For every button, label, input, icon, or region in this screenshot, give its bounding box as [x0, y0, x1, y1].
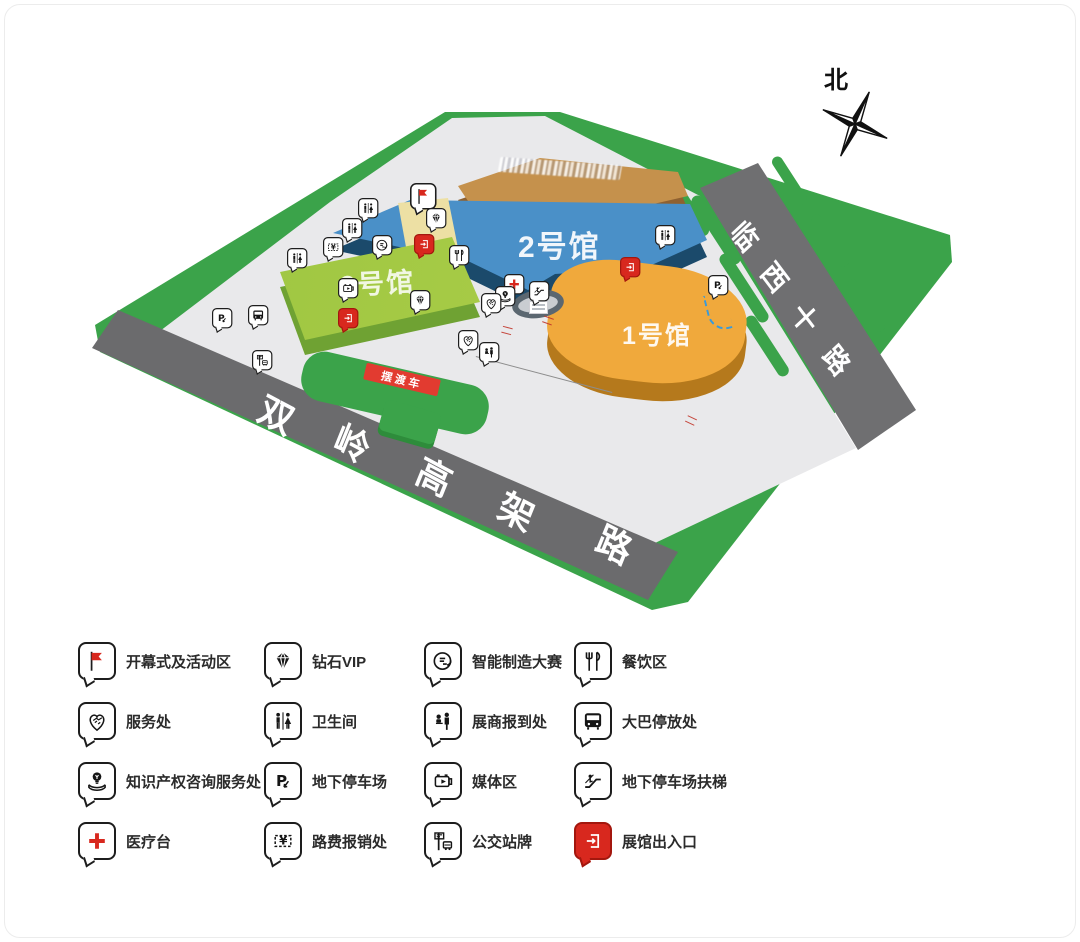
checkin-icon — [481, 344, 497, 360]
parking-icon — [214, 310, 230, 326]
map-pin-service — [481, 293, 501, 313]
legend-item-dining: 餐饮区 — [574, 642, 794, 702]
exit-icon — [416, 236, 432, 252]
legend-item-checkin: 展商报到处 — [424, 702, 574, 762]
legend-label: 公交站牌 — [472, 831, 532, 852]
legend-label: 卫生间 — [312, 711, 357, 732]
ticket-icon — [264, 822, 302, 860]
legend-item-escalator: 地下停车场扶梯 — [574, 762, 794, 822]
legend-label: 开幕式及活动区 — [126, 651, 231, 672]
dining-icon — [451, 247, 467, 263]
exit-icon — [574, 822, 612, 860]
escalator-icon — [531, 283, 547, 299]
map-pin-ticket — [323, 237, 343, 257]
legend-item-medical: 医疗台 — [78, 822, 264, 882]
restroom-icon — [657, 227, 673, 243]
media-icon — [424, 762, 462, 800]
legend-item-diamond: 钻石VIP — [264, 642, 424, 702]
hall2-label: 2号馆 — [518, 222, 601, 266]
checkin-icon — [424, 702, 462, 740]
escalator-icon — [574, 762, 612, 800]
map-pin-service — [458, 330, 478, 350]
map-pin-exit — [414, 234, 434, 254]
legend-item-parking: 地下停车场 — [264, 762, 424, 822]
legend-item-media: 媒体区 — [424, 762, 574, 822]
flag-icon — [78, 642, 116, 680]
legend-label: 展商报到处 — [472, 711, 547, 732]
parking-icon — [710, 277, 726, 293]
diamond-icon — [428, 210, 444, 226]
exit-icon — [622, 259, 638, 275]
legend-item-busstop: 公交站牌 — [424, 822, 574, 882]
legend-label: 路费报销处 — [312, 831, 387, 852]
legend-label: 媒体区 — [472, 771, 517, 792]
legend-label: 知识产权咨询服务处 — [126, 771, 261, 792]
parking-icon — [264, 762, 302, 800]
legend-label: 智能制造大赛 — [472, 651, 562, 672]
diamond-icon — [264, 642, 302, 680]
legend-item-service: 服务处 — [78, 702, 264, 762]
map-pin-restroom — [342, 218, 362, 238]
legend-label: 餐饮区 — [622, 651, 667, 672]
map-pin-diamond — [410, 290, 430, 310]
bus-icon — [574, 702, 612, 740]
legend-label: 大巴停放处 — [622, 711, 697, 732]
legend-item-bus: 大巴停放处 — [574, 702, 794, 762]
map-pin-parking — [212, 308, 232, 328]
map-pin-bus — [248, 305, 268, 325]
restroom-icon — [344, 220, 360, 236]
legend-item-ticket: 路费报销处 — [264, 822, 424, 882]
flag-icon — [413, 186, 433, 206]
poster-canvas: 2号馆 3号馆 1号馆 摆渡车 双岭高架路临西十路 北 开幕式及活动区钻石VIP… — [0, 0, 1080, 942]
map-pin-exit — [338, 308, 358, 328]
map-pin-restroom — [358, 198, 378, 218]
map-pin-media — [338, 278, 358, 298]
exit-icon — [340, 310, 356, 326]
legend-label: 医疗台 — [126, 831, 171, 852]
legend-item-smart: 智能制造大赛 — [424, 642, 574, 702]
legend-label: 服务处 — [126, 711, 171, 732]
busstop-icon — [424, 822, 462, 860]
restroom-icon — [264, 702, 302, 740]
legend: 开幕式及活动区钻石VIP智能制造大赛餐饮区服务处卫生间展商报到处大巴停放处知识产… — [78, 642, 794, 882]
diamond-icon — [412, 292, 428, 308]
map-pin-restroom — [287, 248, 307, 268]
legend-item-flag: 开幕式及活动区 — [78, 642, 264, 702]
smart-icon — [374, 237, 390, 253]
venue-map: 2号馆 3号馆 1号馆 摆渡车 双岭高架路临西十路 — [0, 0, 1080, 632]
ticket-icon — [325, 239, 341, 255]
map-pin-flag — [410, 183, 437, 210]
map-pin-parking — [708, 275, 728, 295]
busstop-icon — [254, 352, 270, 368]
media-icon — [340, 280, 356, 296]
map-pin-diamond — [426, 208, 446, 228]
service-icon — [483, 295, 499, 311]
map-pin-escalator — [529, 281, 549, 301]
map-pin-checkin — [479, 342, 499, 362]
service-icon — [460, 332, 476, 348]
map-pin-exit — [620, 257, 640, 277]
bus-icon — [250, 307, 266, 323]
legend-item-idea: 知识产权咨询服务处 — [78, 762, 264, 822]
map-pin-busstop — [252, 350, 272, 370]
dining-icon — [574, 642, 612, 680]
legend-label: 钻石VIP — [312, 651, 366, 672]
map-pin-dining — [449, 245, 469, 265]
restroom-icon — [289, 250, 305, 266]
restroom-icon — [360, 200, 376, 216]
medical-icon — [78, 822, 116, 860]
map-pin-restroom — [655, 225, 675, 245]
legend-label: 展馆出入口 — [622, 831, 697, 852]
service-icon — [78, 702, 116, 740]
legend-label: 地下停车场扶梯 — [622, 771, 727, 792]
idea-icon — [78, 762, 116, 800]
map-pin-smart — [372, 235, 392, 255]
legend-item-exit: 展馆出入口 — [574, 822, 794, 882]
hall1-label: 1号馆 — [622, 316, 692, 352]
legend-label: 地下停车场 — [312, 771, 387, 792]
legend-item-restroom: 卫生间 — [264, 702, 424, 762]
smart-icon — [424, 642, 462, 680]
